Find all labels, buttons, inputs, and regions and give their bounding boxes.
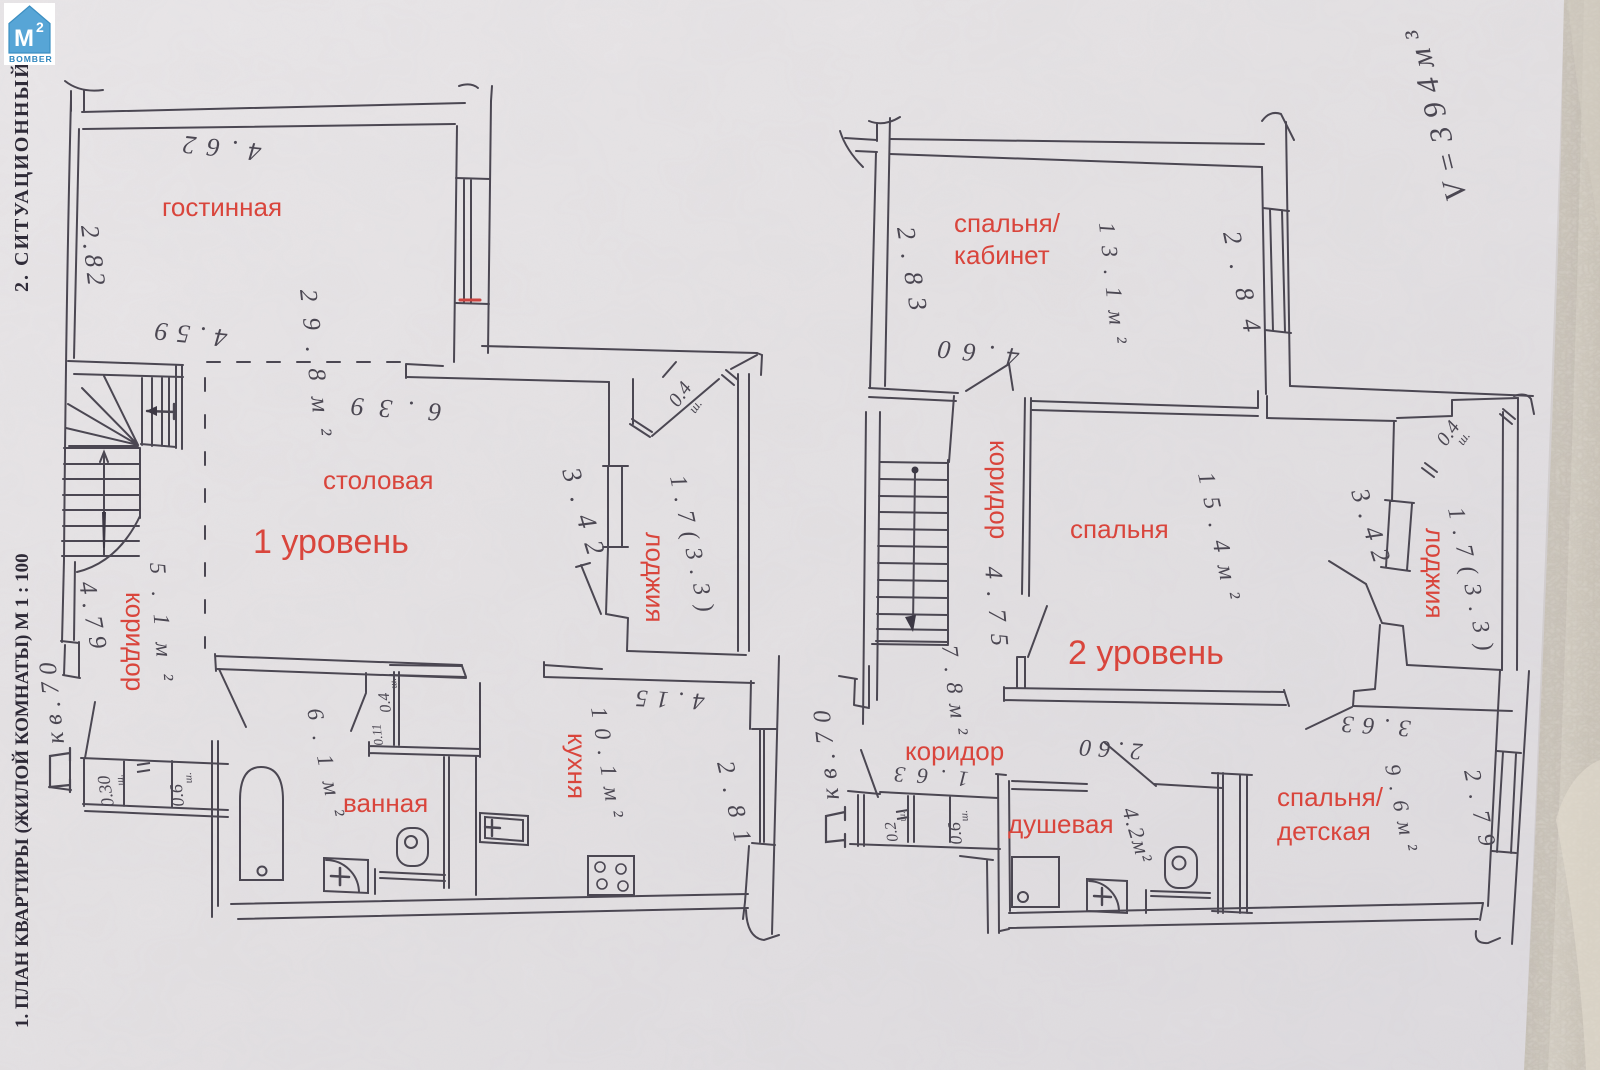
svg-text:кухня: кухня (562, 733, 592, 799)
svg-text:0.4: 0.4 (376, 692, 395, 714)
svg-text:лоджия: лоджия (1420, 528, 1450, 619)
svg-text:кабинет: кабинет (954, 240, 1050, 270)
svg-text:2 уровень: 2 уровень (1068, 634, 1224, 672)
svg-text:M: M (14, 25, 34, 52)
svg-text:0.6: 0.6 (944, 821, 966, 845)
svg-text:душевая: душевая (1008, 809, 1114, 839)
svg-text:2: 2 (36, 19, 44, 35)
svg-text:коридор: коридор (984, 440, 1014, 539)
svg-text:ш.: ш. (182, 772, 195, 784)
svg-text:4.15: 4.15 (626, 684, 705, 714)
svg-text:3.63: 3.63 (1332, 710, 1413, 741)
svg-text:1. ПЛАН КВАРТИРЫ (ЖИЛОЙ КОМНАТ: 1. ПЛАН КВАРТИРЫ (ЖИЛОЙ КОМНАТЫ) М 1 : 1… (11, 553, 33, 1028)
svg-text:0.2: 0.2 (882, 821, 902, 843)
svg-text:0.6: 0.6 (166, 783, 188, 807)
svg-text:2. СИТУАЦИОННЫЙ: 2. СИТУАЦИОННЫЙ (10, 60, 33, 292)
svg-text:2.60: 2.60 (1072, 733, 1144, 764)
svg-text:спальня/: спальня/ (1277, 782, 1384, 812)
svg-text:ш.: ш. (388, 678, 400, 689)
svg-text:столовая: столовая (323, 465, 434, 495)
svg-text:спальня/: спальня/ (954, 208, 1061, 238)
svg-text:гостинная: гостинная (162, 192, 282, 222)
svg-text:детская: детская (1277, 816, 1371, 846)
svg-text:лоджия: лоджия (640, 532, 670, 623)
svg-text:спальня: спальня (1070, 514, 1169, 544)
svg-text:ш.: ш. (958, 810, 971, 822)
svg-text:1 уровень: 1 уровень (253, 523, 409, 561)
svg-text:ванная: ванная (343, 788, 428, 818)
svg-text:ш.: ш. (113, 774, 127, 787)
svg-text:0.11: 0.11 (368, 723, 386, 746)
svg-text:коридор: коридор (120, 592, 150, 691)
svg-text:BOMBER: BOMBER (9, 54, 53, 64)
